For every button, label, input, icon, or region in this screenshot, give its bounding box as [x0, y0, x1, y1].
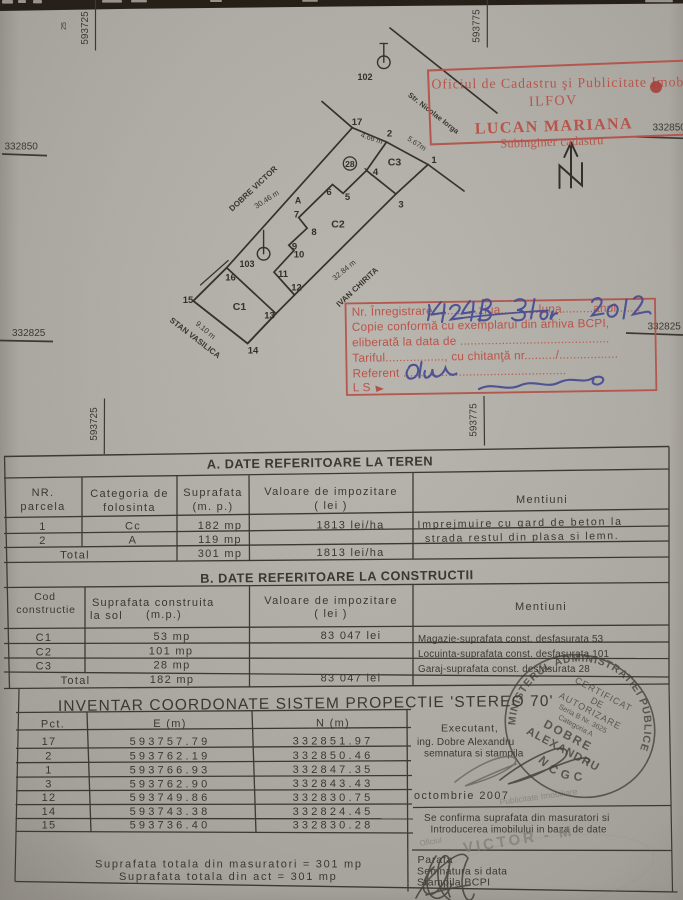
- svg-text:332830.75: 332830.75: [293, 792, 374, 804]
- svg-text:ing. Dobre Alexandru: ing. Dobre Alexandru: [417, 737, 514, 748]
- svg-text:2: 2: [39, 535, 46, 547]
- svg-text:332825: 332825: [12, 328, 46, 339]
- svg-text:1: 1: [45, 765, 52, 777]
- svg-text:C2: C2: [36, 647, 53, 659]
- svg-text:Magazie-suprafata const. desfa: Magazie-suprafata const. desfasurata 53: [418, 634, 604, 645]
- svg-text:16: 16: [225, 273, 236, 284]
- svg-text:Total: Total: [60, 550, 90, 562]
- svg-text:( lei ): ( lei ): [314, 608, 348, 620]
- svg-text:4: 4: [373, 167, 379, 178]
- svg-text:N (m): N (m): [316, 718, 350, 730]
- svg-text:101 mp: 101 mp: [149, 646, 194, 658]
- svg-text:182 mp: 182 mp: [198, 520, 243, 532]
- svg-text:593743.38: 593743.38: [130, 806, 211, 818]
- svg-text:593749.86: 593749.86: [130, 792, 211, 804]
- svg-text:2: 2: [387, 129, 392, 140]
- svg-text:332824.45: 332824.45: [293, 806, 374, 818]
- svg-text:593725: 593725: [80, 11, 91, 45]
- svg-text:3: 3: [398, 200, 403, 211]
- svg-text:28: 28: [345, 159, 355, 169]
- svg-text:593762.90: 593762.90: [130, 778, 211, 790]
- svg-text:octombrie 2007: octombrie 2007: [414, 790, 509, 802]
- svg-text:semnatura si stampila: semnatura si stampila: [424, 749, 524, 760]
- svg-text:Categoria de: Categoria de: [90, 488, 169, 500]
- svg-text:parcela: parcela: [20, 501, 65, 513]
- svg-text:332830.28: 332830.28: [293, 820, 374, 832]
- svg-text:Se confirma suprafata din masu: Se confirma suprafata din masuratori si: [424, 813, 610, 824]
- svg-text:83 047 lei: 83 047 lei: [321, 673, 382, 685]
- svg-text:14: 14: [248, 346, 259, 357]
- svg-text:1813 lei/ha: 1813 lei/ha: [316, 520, 384, 532]
- svg-text:102: 102: [357, 72, 372, 82]
- svg-text:332847.35: 332847.35: [293, 764, 374, 776]
- svg-text:12: 12: [42, 792, 57, 804]
- svg-text:Oficiul de Cadastru şi Publici: Oficiul de Cadastru şi Publicitate Imobi…: [431, 74, 683, 91]
- svg-text:folosinta: folosinta: [103, 502, 156, 514]
- svg-text:103: 103: [239, 259, 254, 269]
- svg-text:5: 5: [345, 192, 351, 203]
- svg-text:constructie: constructie: [16, 604, 76, 616]
- svg-text:Valoare de impozitare: Valoare de impozitare: [264, 595, 398, 607]
- svg-text:Suprafata totala din masurator: Suprafata totala din masuratori = 301 mp: [95, 859, 363, 871]
- svg-text:1813 lei/ha: 1813 lei/ha: [316, 547, 384, 559]
- svg-text:A: A: [295, 196, 302, 206]
- svg-text:17: 17: [352, 117, 363, 128]
- svg-text:Total: Total: [61, 675, 91, 687]
- svg-text:332843.43: 332843.43: [293, 778, 374, 790]
- svg-text:593736.40: 593736.40: [130, 819, 211, 831]
- svg-text:NR.: NR.: [32, 487, 55, 499]
- svg-text:332850: 332850: [5, 142, 39, 153]
- svg-text:E (m): E (m): [153, 718, 186, 730]
- svg-text:Mentiuni: Mentiuni: [515, 601, 567, 613]
- svg-text:28 mp: 28 mp: [153, 660, 190, 672]
- svg-text:Suprafata totala din act = 301: Suprafata totala din act = 301 mp: [119, 871, 337, 883]
- svg-text:301 mp: 301 mp: [198, 548, 243, 560]
- svg-text:119 mp: 119 mp: [198, 534, 242, 546]
- svg-text:L S: L S: [353, 380, 371, 394]
- svg-text:593757.79: 593757.79: [130, 736, 211, 748]
- svg-text:C1: C1: [233, 301, 247, 313]
- svg-text:Cod: Cod: [34, 591, 56, 603]
- svg-text:12: 12: [291, 283, 302, 294]
- svg-text:Suprafata construita: Suprafata construita: [92, 597, 214, 609]
- svg-text:17: 17: [42, 736, 57, 748]
- svg-text:593725: 593725: [89, 407, 100, 441]
- svg-text:25: 25: [61, 22, 68, 30]
- svg-text:C3: C3: [388, 157, 402, 169]
- svg-text:1: 1: [39, 521, 46, 533]
- svg-text:8: 8: [311, 227, 316, 238]
- svg-text:Valoare de impozitare: Valoare de impozitare: [264, 486, 398, 498]
- svg-text:ILFOV: ILFOV: [529, 93, 578, 110]
- svg-text:332850.46: 332850.46: [293, 750, 374, 762]
- svg-text:11: 11: [278, 269, 289, 280]
- svg-text:7: 7: [294, 210, 299, 221]
- svg-text:15: 15: [183, 295, 194, 306]
- svg-text:182 mp: 182 mp: [150, 674, 195, 686]
- svg-text:593766.93: 593766.93: [130, 765, 211, 777]
- svg-text:Suprafata: Suprafata: [183, 487, 242, 499]
- svg-text:10: 10: [294, 250, 305, 261]
- svg-text:(m.p.): (m.p.): [146, 609, 182, 621]
- svg-text:14: 14: [42, 806, 57, 818]
- svg-text:13: 13: [264, 311, 275, 322]
- svg-text:la sol: la sol: [90, 610, 123, 622]
- svg-text:3: 3: [45, 778, 52, 790]
- svg-text:Executant,: Executant,: [441, 723, 499, 735]
- svg-text:6: 6: [326, 187, 331, 198]
- svg-text:593775: 593775: [469, 403, 480, 437]
- svg-text:593762.19: 593762.19: [130, 750, 211, 762]
- svg-text:53 mp: 53 mp: [153, 631, 190, 643]
- svg-text:1: 1: [431, 155, 437, 166]
- svg-text:15: 15: [42, 819, 57, 831]
- svg-text:593775: 593775: [472, 9, 483, 43]
- svg-text:Mentiuni: Mentiuni: [516, 494, 568, 506]
- svg-text:332850: 332850: [653, 123, 683, 134]
- svg-text:2: 2: [45, 750, 52, 762]
- svg-text:( lei ): ( lei ): [314, 500, 348, 512]
- svg-text:C1: C1: [36, 632, 53, 644]
- svg-text:332851.97: 332851.97: [293, 736, 374, 748]
- svg-text:Cc: Cc: [125, 521, 141, 533]
- svg-text:(m. p.): (m. p.): [193, 501, 234, 513]
- svg-text:83 047 lei: 83 047 lei: [321, 630, 382, 642]
- svg-text:C2: C2: [331, 219, 345, 231]
- svg-text:A: A: [129, 535, 138, 547]
- svg-text:Pct.: Pct.: [41, 719, 65, 731]
- svg-text:332825: 332825: [648, 322, 682, 333]
- svg-text:C3: C3: [36, 661, 53, 673]
